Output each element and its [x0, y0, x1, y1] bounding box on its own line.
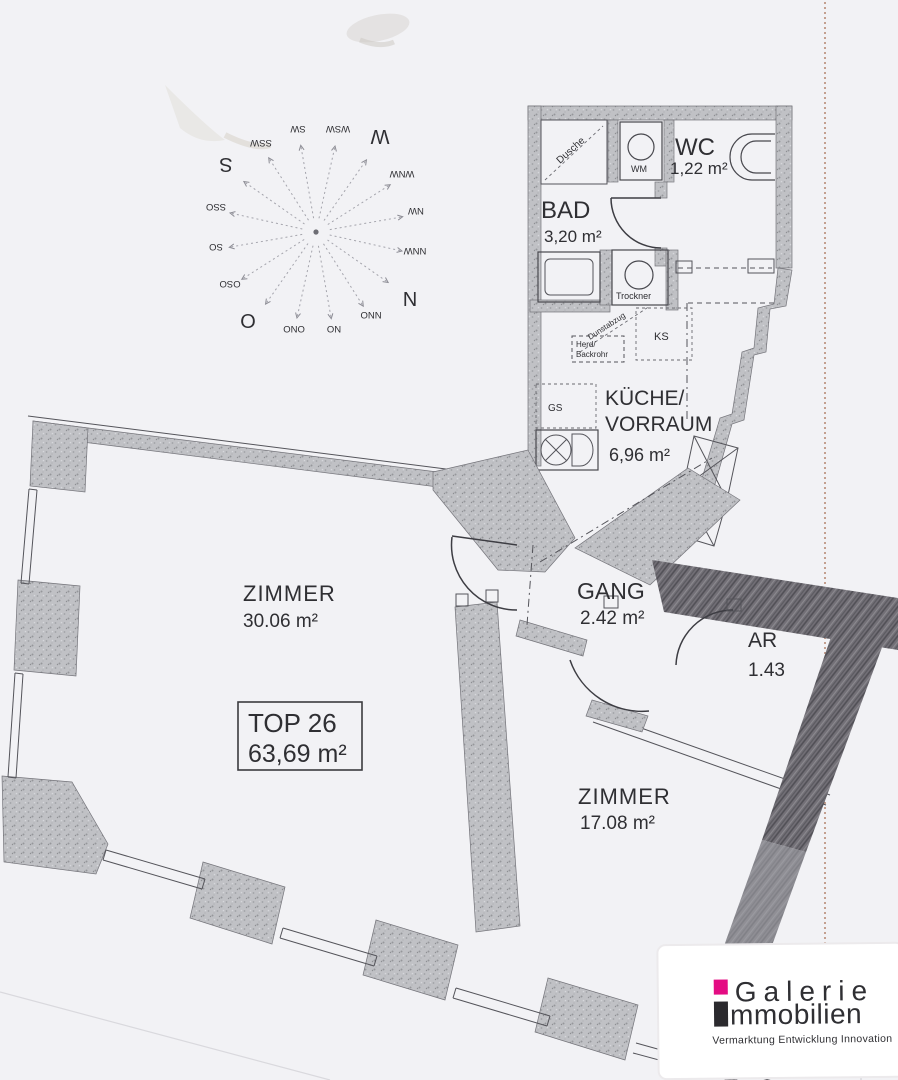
gs-label: GS — [548, 403, 563, 414]
gang-name: GANG — [577, 578, 645, 604]
ks-label: KS — [654, 331, 669, 343]
unit-id: TOP 26 — [248, 708, 337, 738]
logo-tagline: Vermarktung Entwicklung Innovation — [712, 1033, 892, 1047]
compass-center — [313, 229, 318, 234]
logo-brand-line2: mmobilien — [730, 998, 862, 1030]
logo-pink-square — [714, 980, 728, 995]
wc-area: 1,22 m² — [670, 159, 728, 178]
herd-label-2: Backrohr — [576, 350, 608, 359]
compass-label-s: S — [219, 153, 232, 175]
zimmer-gross-area: 30.06 m² — [243, 611, 318, 632]
logo-black-bar — [714, 1002, 728, 1027]
compass-label-o: O — [240, 309, 256, 331]
compass-label-oso: OSO — [219, 278, 240, 289]
zimmer-klein-door-arc — [570, 660, 649, 711]
window-bottom-3 — [453, 988, 550, 1026]
wm-label: WM — [631, 164, 647, 174]
compass-label-wsw: WSW — [326, 123, 350, 134]
zimmer-klein-name: ZIMMER — [578, 784, 671, 809]
compass-label-w: W — [370, 125, 389, 147]
bad-door-arc — [611, 198, 661, 248]
scanned-floor-plan-page: N NNO NO ONO O OSO SO SSO S SSW SW WSW W… — [0, 0, 898, 1080]
zimmer-klein-area: 17.08 m² — [580, 813, 655, 834]
bad-area: 3,20 m² — [544, 227, 602, 246]
kueche-name-2: VORRAUM — [605, 413, 712, 436]
divider-wall — [455, 602, 520, 932]
dusche-label: Dusche — [555, 135, 588, 166]
kueche-name-1: KÜCHE/ — [605, 387, 685, 410]
zimmer-gross-name: ZIMMER — [243, 581, 336, 606]
compass-label-wnw: WNW — [390, 168, 415, 179]
window-bottom-2 — [280, 928, 377, 966]
compass-label-ssw: SSW — [250, 137, 272, 148]
window-left-2 — [8, 673, 23, 778]
wc-name: WC — [675, 134, 715, 161]
junction-wall — [433, 450, 575, 572]
compass-label-n: N — [403, 287, 417, 309]
window-bottom-1 — [103, 850, 205, 889]
unit-summary-box: TOP 26 63,69 m² — [238, 702, 362, 770]
compass-label-nno: NNO — [360, 309, 381, 320]
compass-label-sso: SSO — [206, 201, 226, 212]
floor-plan-drawing: N NNO NO ONO O OSO SO SSO S SSW SW WSW W… — [0, 0, 898, 1080]
compass-rose: N NNO NO ONO O OSO SO SSO S SSW SW WSW W… — [206, 123, 426, 334]
window-left-1 — [21, 489, 37, 584]
gang-area: 2.42 m² — [580, 608, 644, 629]
scan-artifacts — [0, 2, 861, 1080]
unit-area: 63,69 m² — [248, 740, 347, 768]
compass-label-no: NO — [327, 323, 341, 334]
compass-label-so: SO — [209, 241, 223, 252]
herd-label-1: Herd/ — [576, 340, 596, 349]
compass-label-nw: NW — [408, 205, 424, 216]
dunstabzug-label: Dunstabzug — [586, 311, 627, 342]
stepped-outer-wall — [692, 268, 792, 516]
bad-name: BAD — [541, 197, 590, 224]
compass-label-nnw: NNW — [404, 245, 427, 256]
trockner-label: Trockner — [616, 291, 651, 301]
ar-area: 1.43 — [748, 660, 785, 681]
logo-card: Galerie mmobilien Vermarktung Entwicklun… — [657, 943, 898, 1080]
compass-label-ono: ONO — [283, 323, 305, 334]
compass-labels: N NNO NO ONO O OSO SO SSO S SSW SW WSW W… — [206, 123, 426, 334]
compass-label-sw: SW — [290, 123, 305, 134]
ar-name: AR — [748, 629, 777, 652]
kueche-area: 6,96 m² — [609, 445, 670, 465]
